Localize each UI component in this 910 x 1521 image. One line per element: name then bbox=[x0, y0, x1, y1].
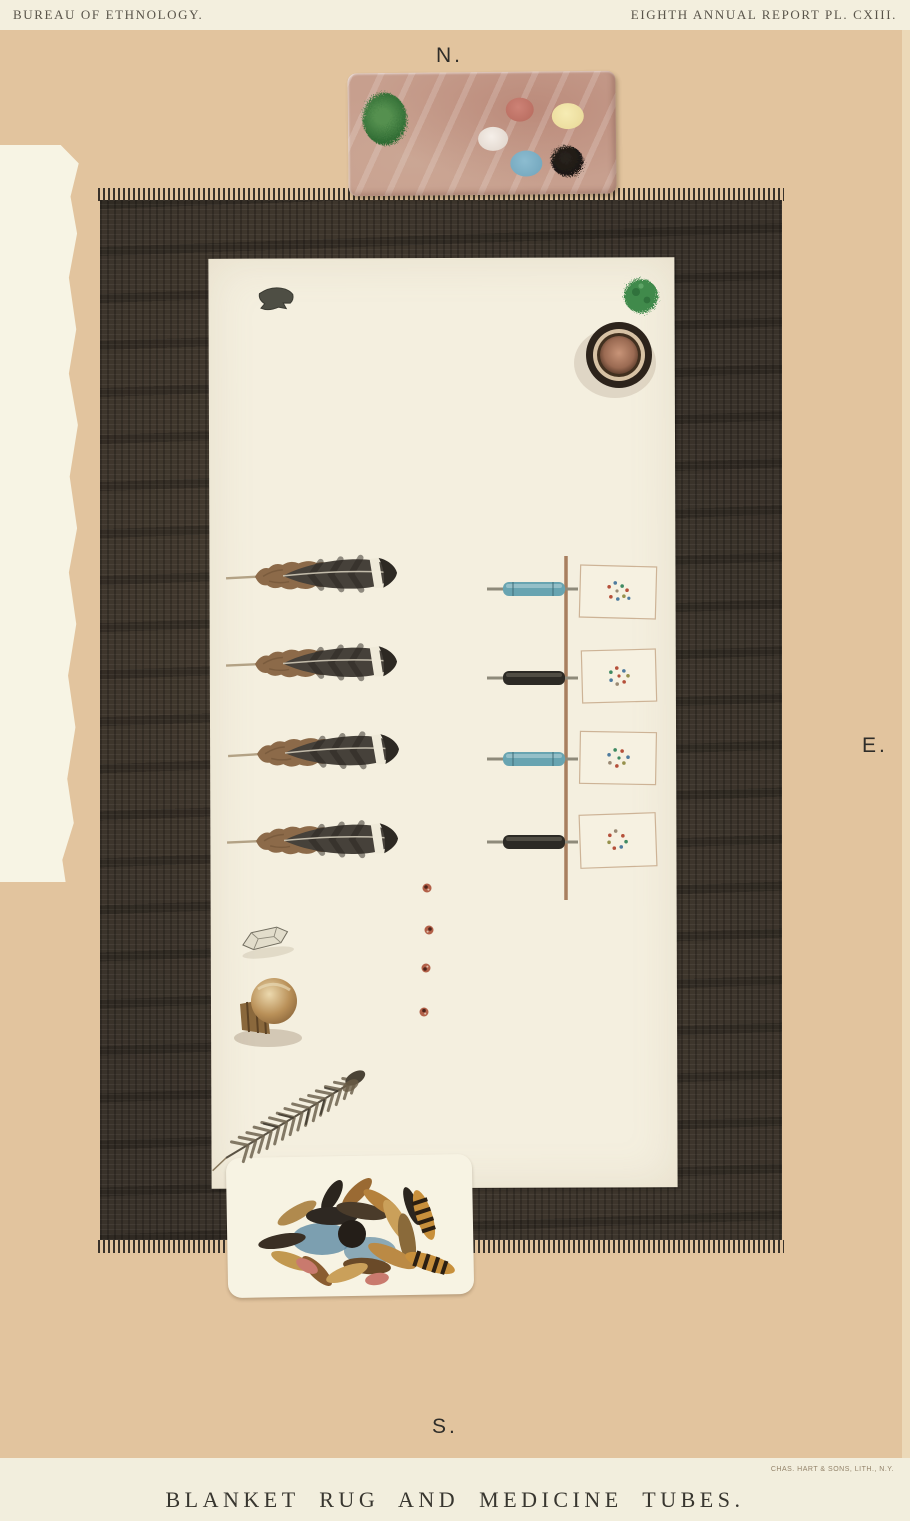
header-band: BUREAU OF ETHNOLOGY. EIGHTH ANNUAL REPOR… bbox=[0, 0, 910, 30]
torn-page-edge bbox=[0, 145, 82, 882]
feather-bundle-sheet bbox=[226, 1154, 474, 1298]
paint-spot-yellow bbox=[552, 103, 584, 129]
lithographer-credit: CHAS. HART & SONS, LITH., N.Y. bbox=[771, 1466, 894, 1473]
paint-spot-blue bbox=[510, 150, 542, 176]
paint-palette bbox=[347, 71, 616, 197]
white-cloth bbox=[208, 257, 677, 1189]
paint-spot-green bbox=[363, 93, 408, 145]
page-edge bbox=[902, 0, 910, 1521]
compass-south-label: S. bbox=[432, 1415, 458, 1439]
compass-east-label: E. bbox=[862, 734, 888, 758]
plate-caption: BLANKET RUG AND MEDICINE TUBES. bbox=[0, 1487, 910, 1513]
paint-spot-black bbox=[551, 146, 583, 176]
paint-spot-salmon bbox=[506, 97, 534, 121]
header-right-text: EIGHTH ANNUAL REPORT PL. CXIII. bbox=[631, 7, 897, 23]
header-left-text: BUREAU OF ETHNOLOGY. bbox=[13, 7, 203, 23]
lithograph-plate: BUREAU OF ETHNOLOGY. EIGHTH ANNUAL REPOR… bbox=[0, 0, 910, 1521]
compass-north-label: N. bbox=[436, 44, 463, 68]
paint-spot-white bbox=[478, 127, 508, 151]
